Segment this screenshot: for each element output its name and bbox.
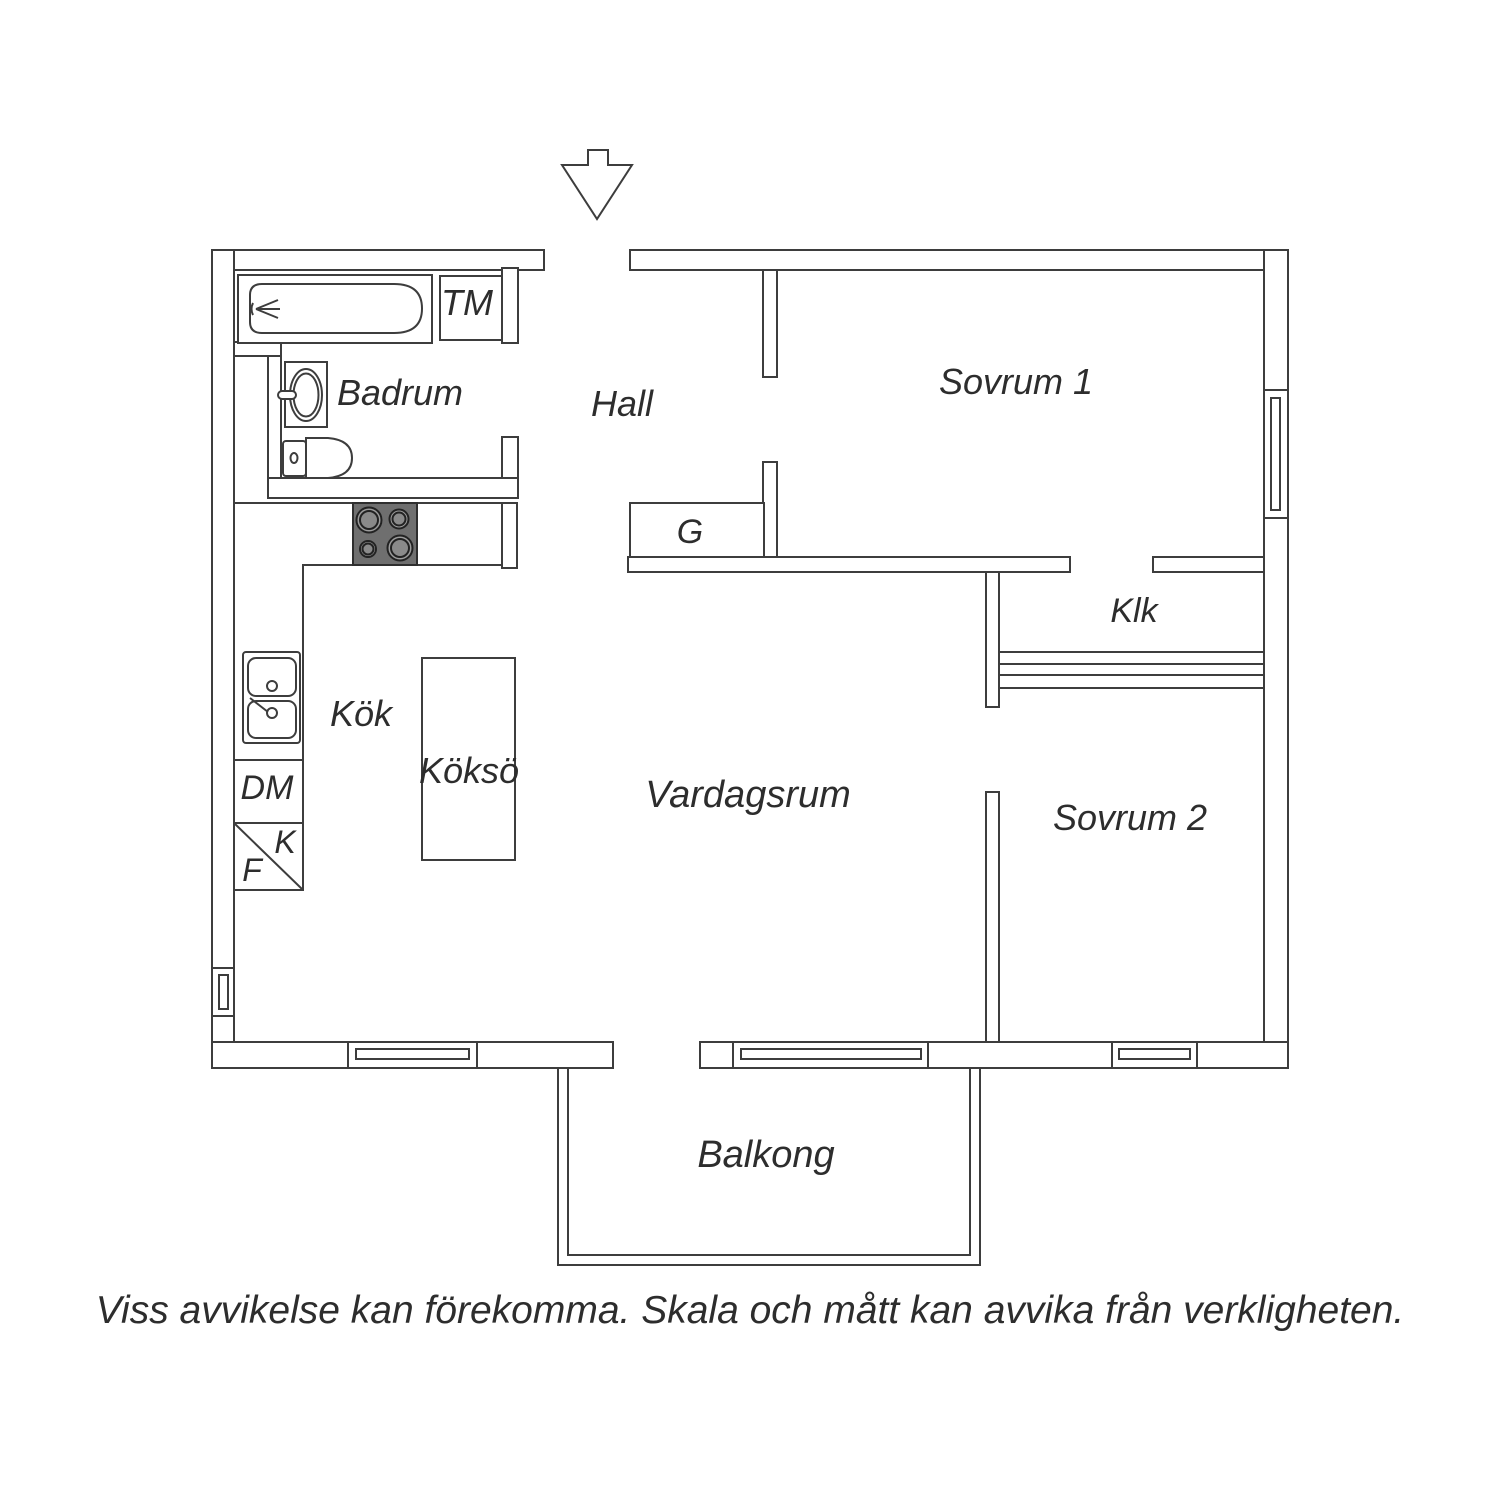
disclaimer-text: Viss avvikelse kan förekomma. Skala och … <box>96 1289 1405 1332</box>
wall-hall-sovrum1-lower <box>763 462 777 557</box>
room-label-klk: Klk <box>1110 592 1159 630</box>
wall-top-right <box>630 250 1288 270</box>
island-label-kokso: Köksö <box>419 750 519 791</box>
wall-bathroom-under-tub <box>234 342 281 356</box>
appliance-label-tm: TM <box>441 282 493 323</box>
wall-klk-bottom <box>999 652 1264 664</box>
room-label-sovrum2: Sovrum 2 <box>1053 797 1207 838</box>
wall-sovrum2-left <box>986 792 999 1042</box>
floorplan-drawing: Badrum TM Hall Sovrum 1 G Klk Kök Köksö … <box>0 0 1500 1500</box>
room-label-balkong: Balkong <box>697 1134 834 1176</box>
bathtub-icon <box>238 275 432 343</box>
wall-klk-left <box>986 572 999 707</box>
wall-top-left <box>212 250 544 270</box>
kitchen-sink-icon <box>243 652 300 743</box>
room-label-hall: Hall <box>591 383 654 424</box>
room-label-vardagsrum: Vardagsrum <box>645 774 851 816</box>
wall-bathroom-door-stub <box>502 437 518 478</box>
wall-left <box>212 250 234 1068</box>
wall-hall-bottom <box>628 557 1070 572</box>
stove-icon <box>353 503 417 565</box>
window-icon <box>348 1042 477 1068</box>
wall-sovrum1-bottom-right <box>1153 557 1264 572</box>
appliance-label-f: F <box>242 852 264 888</box>
window-icon <box>1264 390 1288 518</box>
wall-right <box>1264 250 1288 1068</box>
balcony-door <box>733 1042 928 1068</box>
appliance-label-dm: DM <box>241 769 295 807</box>
wall-bathroom-bottom <box>268 478 518 498</box>
wall-hall-sovrum1-upper <box>763 270 777 377</box>
wall-tm-right <box>502 268 518 343</box>
washbasin-icon <box>278 362 327 427</box>
wall-bathroom-left <box>268 356 281 478</box>
window-icon <box>212 968 234 1016</box>
toilet-icon <box>283 438 352 478</box>
floorplan-canvas: Badrum TM Hall Sovrum 1 G Klk Kök Köksö … <box>0 0 1500 1500</box>
room-label-kok: Kök <box>330 693 394 734</box>
room-label-sovrum1: Sovrum 1 <box>939 361 1093 402</box>
appliance-label-k: K <box>274 824 297 860</box>
wall-kitchen-stub <box>502 503 517 568</box>
entrance-arrow-icon <box>562 150 632 219</box>
wall-sovrum2-top <box>999 675 1264 688</box>
room-label-badrum: Badrum <box>337 372 463 413</box>
closet-label-g: G <box>677 513 703 551</box>
window-icon <box>1112 1042 1197 1068</box>
